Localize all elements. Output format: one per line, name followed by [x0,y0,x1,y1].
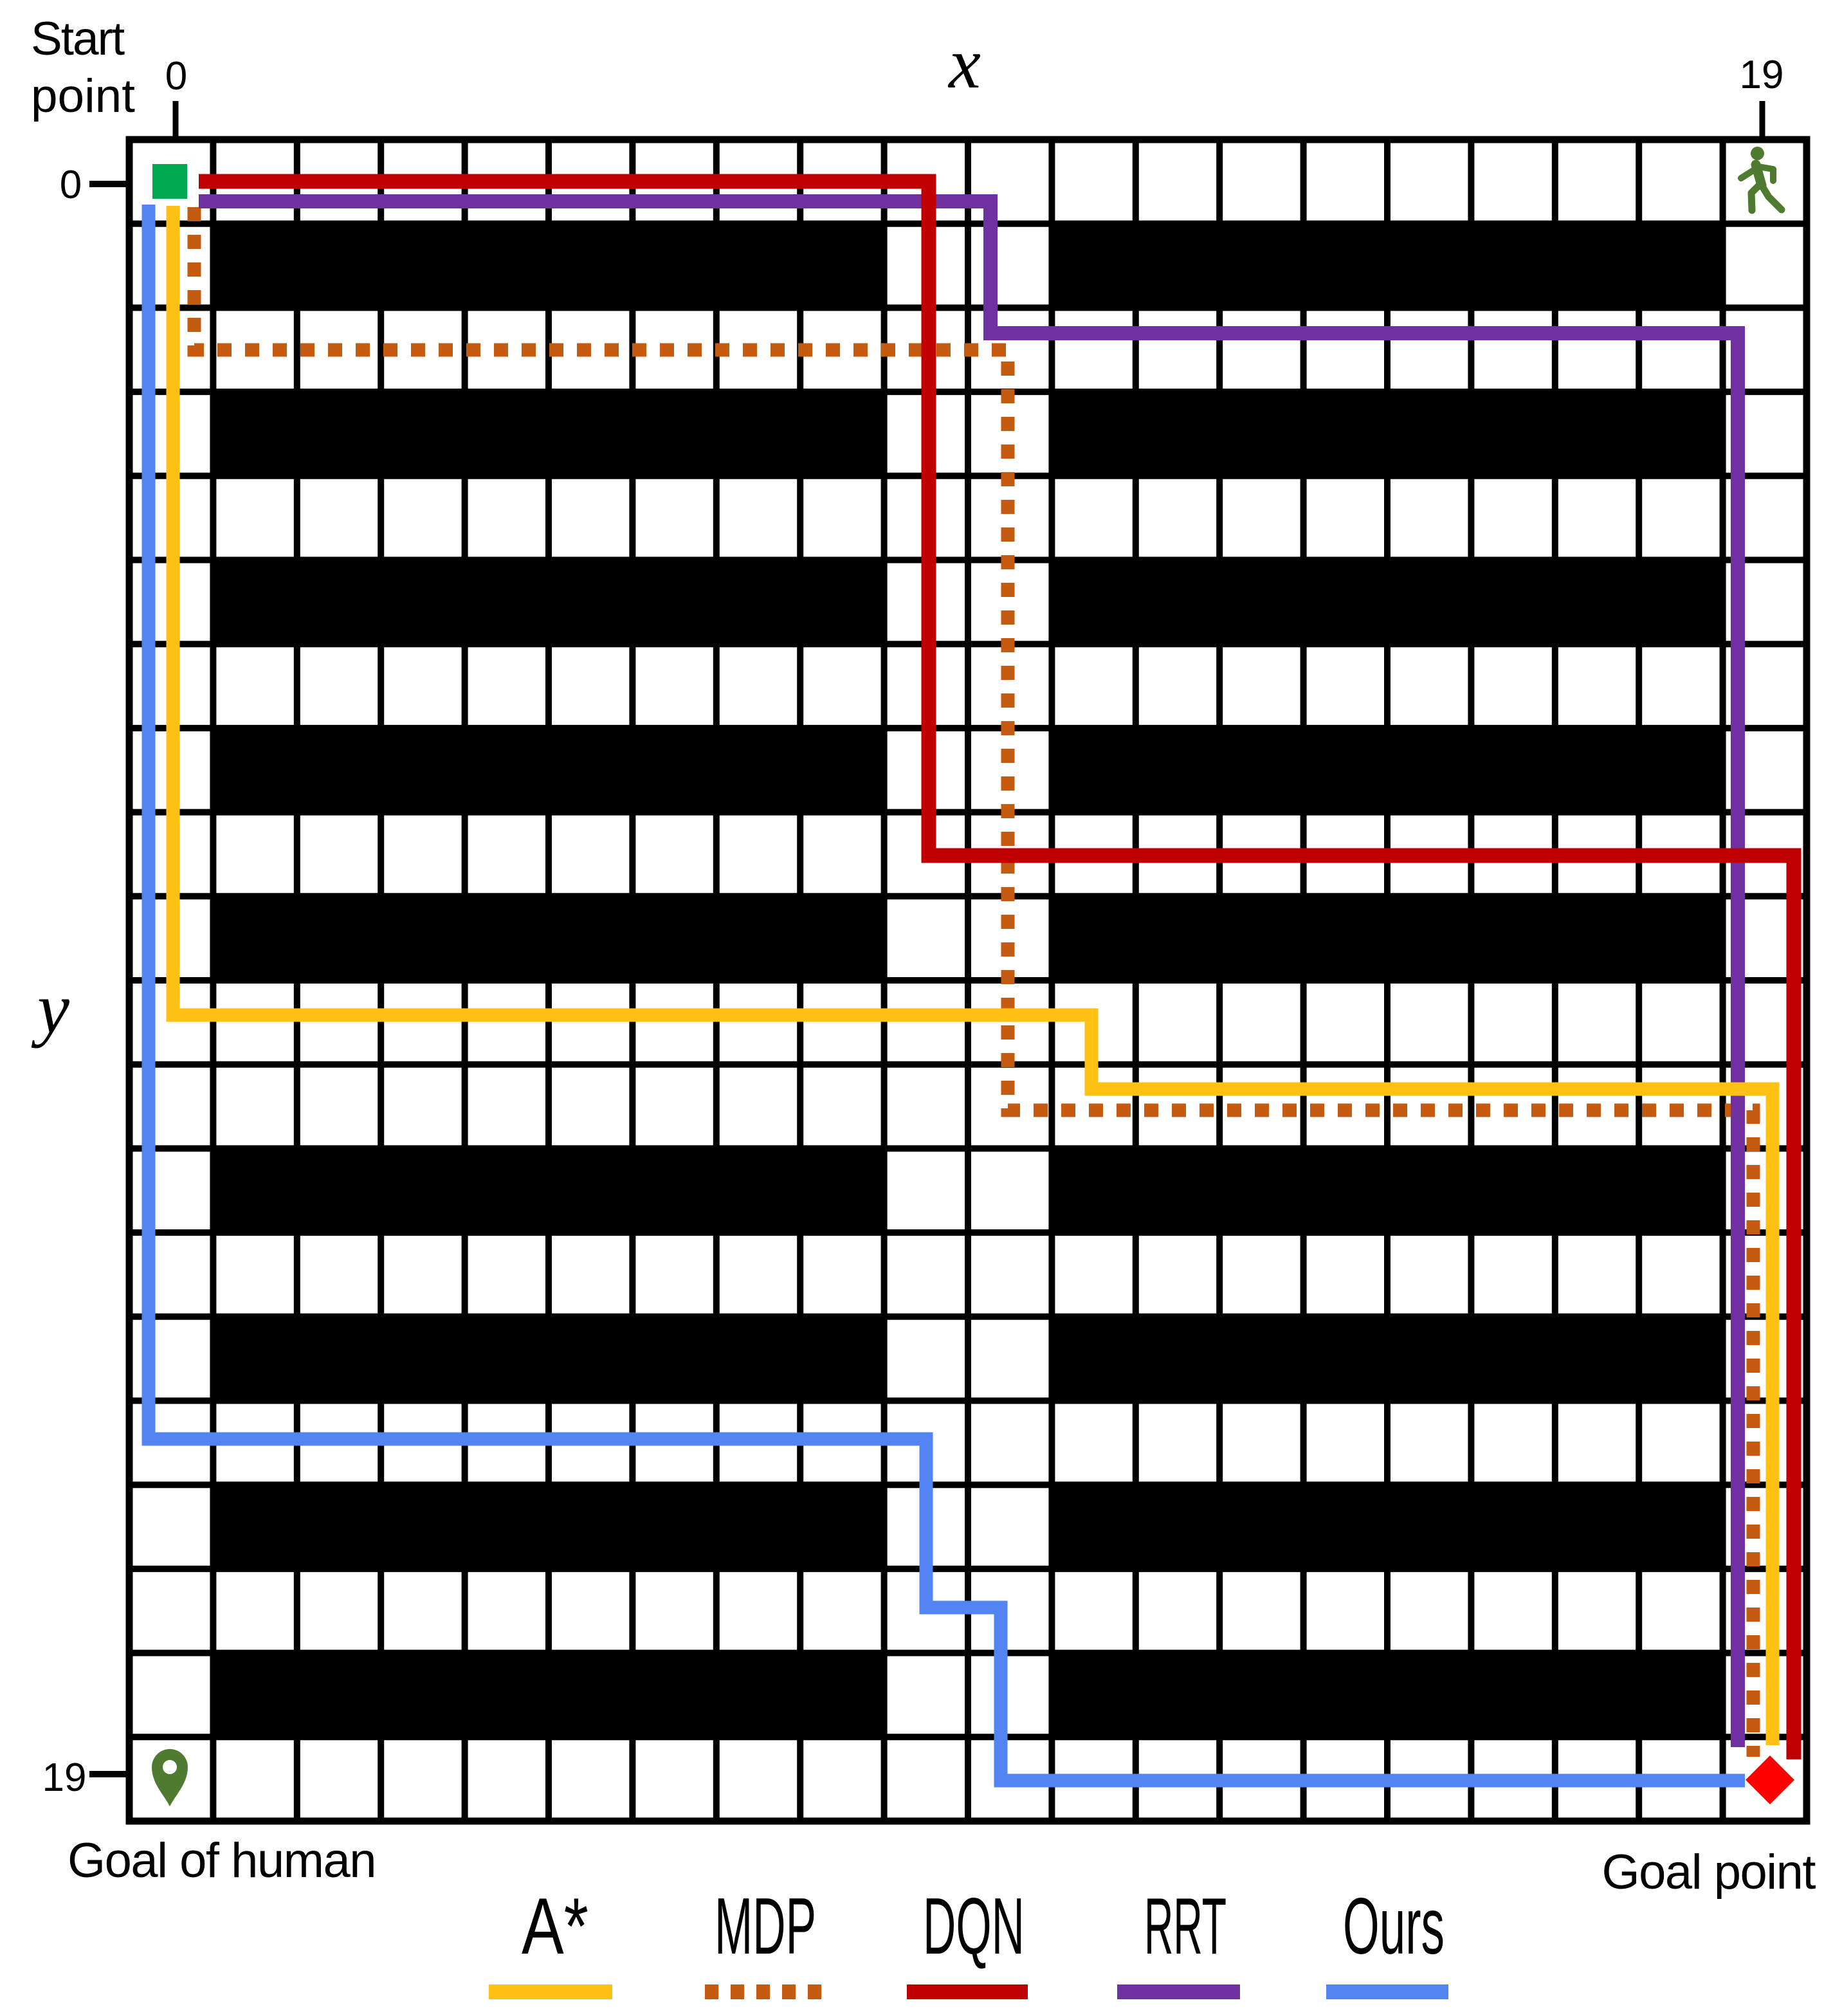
svg-text:Goal point: Goal point [1602,1845,1816,1900]
svg-text:0: 0 [165,54,187,98]
svg-text:19: 19 [42,1755,87,1800]
svg-text:DQN: DQN [923,1882,1025,1971]
svg-text:A*: A* [522,1882,588,1971]
svg-text:RRT: RRT [1144,1882,1227,1971]
svg-text:Start: Start [31,13,125,65]
svg-text:0: 0 [60,163,82,207]
svg-text:Ours: Ours [1343,1882,1445,1971]
svg-text:MDP: MDP [715,1882,816,1971]
svg-text:19: 19 [1740,53,1784,97]
svg-text:x: x [947,24,981,104]
svg-text:Goal of human: Goal of human [68,1833,376,1888]
svg-text:point: point [31,70,135,122]
